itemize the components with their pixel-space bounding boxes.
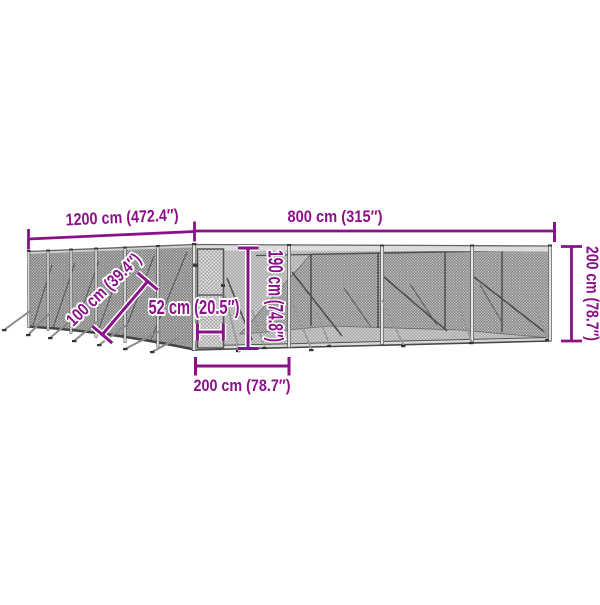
svg-text:800 cm (315″): 800 cm (315″) [288,207,383,226]
svg-text:200 cm (78.7″): 200 cm (78.7″) [194,376,291,395]
svg-text:200 cm (78.7″): 200 cm (78.7″) [582,246,600,341]
svg-text:190 cm (74.8″): 190 cm (74.8″) [263,250,287,342]
svg-text:52 cm (20.5″): 52 cm (20.5″) [149,296,240,319]
